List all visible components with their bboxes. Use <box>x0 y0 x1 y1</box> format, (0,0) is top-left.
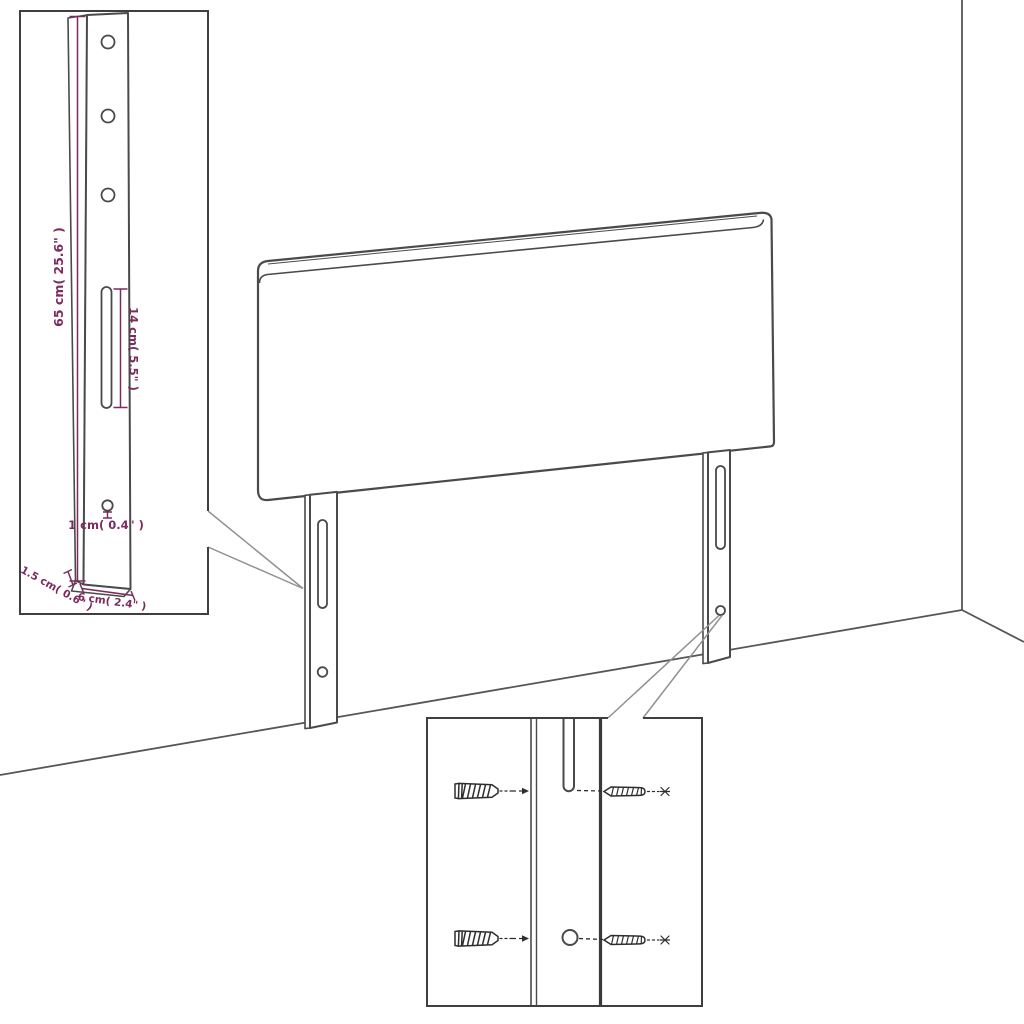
bracket-hole-3 <box>102 189 115 202</box>
bracket-hole-1 <box>102 36 115 49</box>
headboard-dimension-diagram: 65 cm( 25.6" ) 14 cm( 5.5" ) 1 cm( 0.4" … <box>0 0 1024 1024</box>
label-leg-height: 65 cm( 25.6" ) <box>51 227 66 327</box>
bracket-slot <box>102 287 112 408</box>
left-leg-slot <box>318 520 327 608</box>
inset-mounting-hardware <box>427 718 702 1006</box>
label-hole-diameter: 1 cm( 0.4" ) <box>68 518 144 532</box>
headboard-leg-right <box>703 450 730 664</box>
headboard-leg-left <box>305 492 337 729</box>
diagram-canvas: 65 cm( 25.6" ) 14 cm( 5.5" ) 1 cm( 0.4" … <box>0 0 1024 1024</box>
bracket-hole-2 <box>102 110 115 123</box>
bracket-small-hole <box>102 500 112 510</box>
label-slot-length: 14 cm( 5.5" ) <box>127 307 141 391</box>
left-leg-hole <box>318 667 328 677</box>
right-leg-hole <box>716 606 725 615</box>
inset-leg-dimensions: 65 cm( 25.6" ) 14 cm( 5.5" ) 1 cm( 0.4" … <box>18 11 208 614</box>
right-leg-slot <box>716 466 725 549</box>
